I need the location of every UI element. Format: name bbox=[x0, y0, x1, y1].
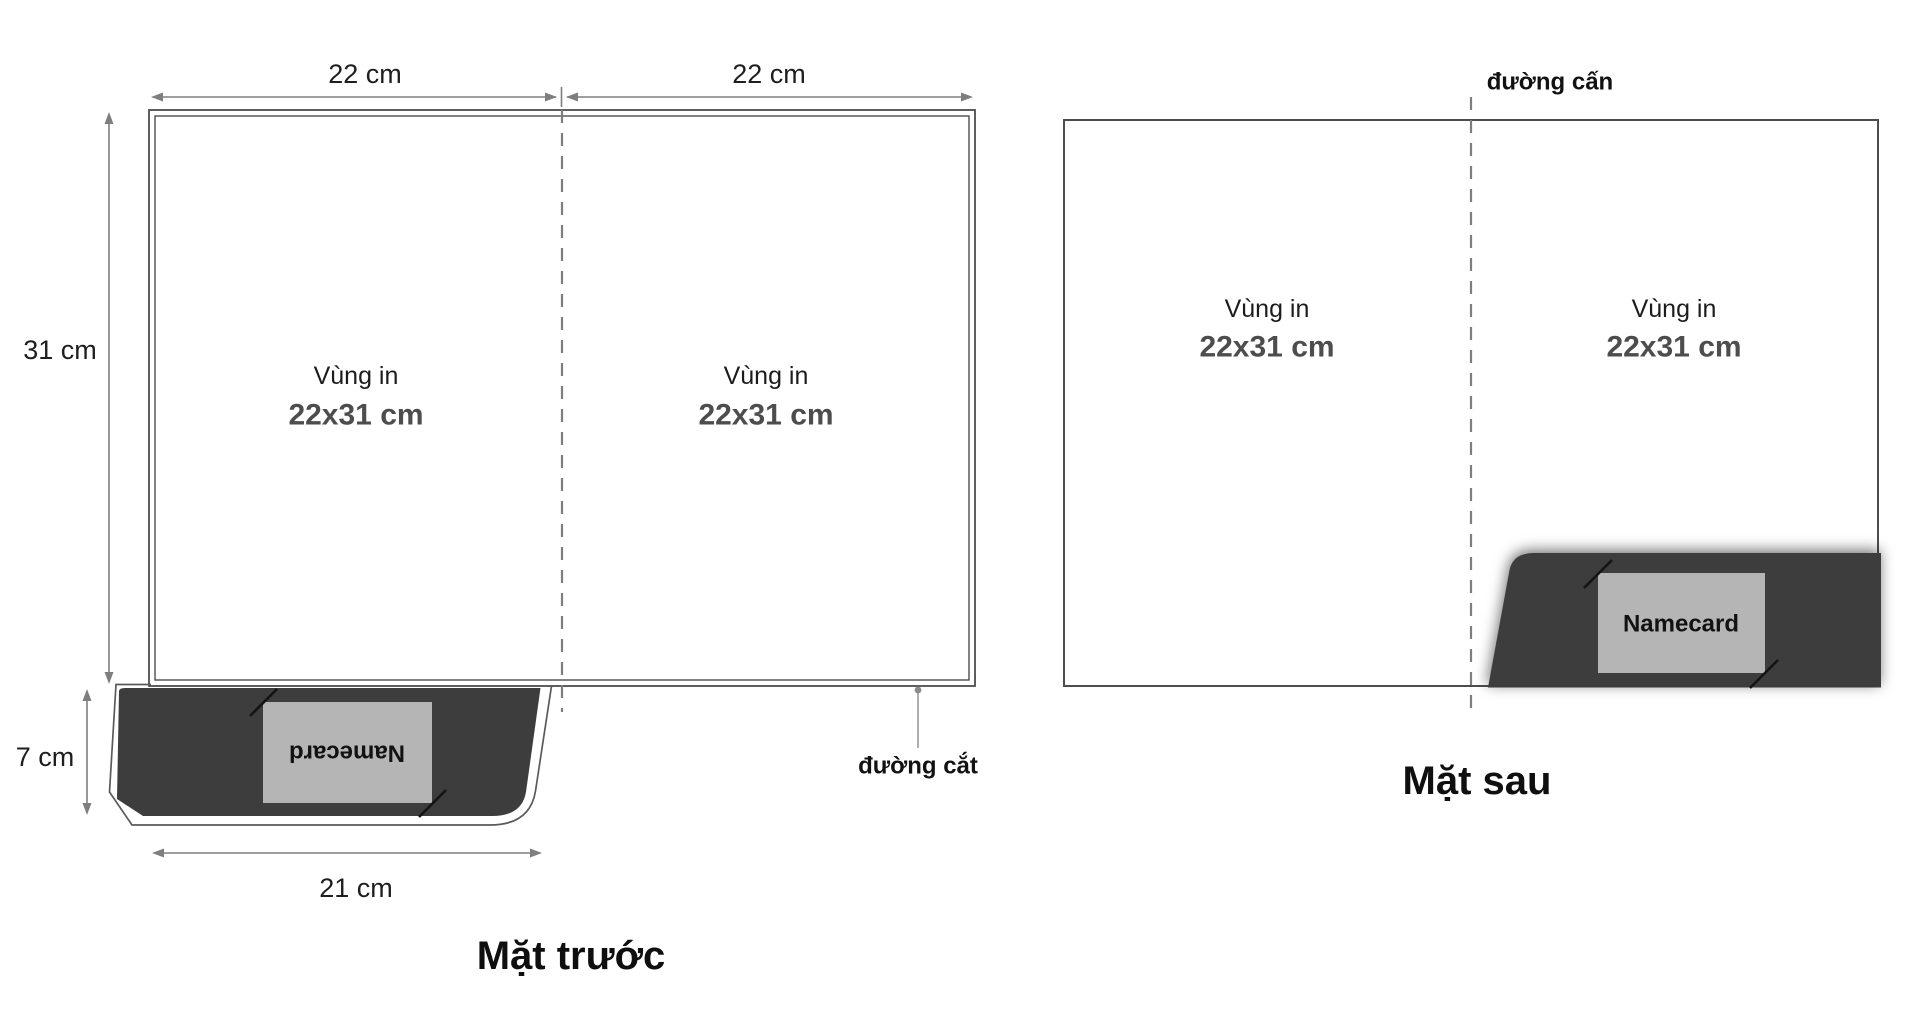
arrowhead-right-icon bbox=[530, 849, 542, 858]
arrowhead-left-icon bbox=[152, 849, 164, 858]
front-width-right-label: 22 cm bbox=[732, 59, 806, 89]
arrowhead-up-icon bbox=[105, 112, 114, 124]
back-panel-diagram: đường cấn Vùng in 22x31 cm Vùng in 22x31… bbox=[1064, 69, 1881, 804]
front-panel-diagram: 22 cm 22 cm 31 cm 7 cm Vùng in 22x31 cm … bbox=[16, 59, 978, 978]
back-namecard-slot: Namecard bbox=[1584, 560, 1778, 688]
back-namecard-label: Namecard bbox=[1623, 611, 1739, 638]
front-namecard-slot: Namecard bbox=[250, 689, 446, 817]
back-left-area-label: Vùng in bbox=[1225, 295, 1310, 323]
back-right-area-label: Vùng in bbox=[1632, 295, 1717, 323]
front-left-area-label: Vùng in bbox=[314, 362, 399, 390]
back-title: Mặt sau bbox=[1403, 759, 1552, 803]
front-width-dimension-left: 22 cm bbox=[151, 59, 557, 102]
front-height-label: 31 cm bbox=[23, 335, 97, 365]
front-pocket-height-dimension: 7 cm bbox=[16, 689, 92, 815]
front-width-left-label: 22 cm bbox=[328, 59, 402, 89]
arrowhead-left-icon bbox=[151, 93, 163, 102]
back-crease-label: đường cấn bbox=[1487, 69, 1613, 96]
front-title: Mặt trước bbox=[477, 934, 666, 978]
front-width-dimension-right: 22 cm bbox=[566, 59, 973, 102]
arrowhead-left-icon bbox=[566, 93, 578, 102]
arrowhead-down-icon bbox=[105, 672, 114, 684]
folder-dieline-diagram: 22 cm 22 cm 31 cm 7 cm Vùng in 22x31 cm … bbox=[0, 0, 1920, 1014]
front-pocket-height-label: 7 cm bbox=[16, 742, 75, 772]
front-right-area-size: 22x31 cm bbox=[698, 399, 833, 432]
front-cut-line-label: đường cắt bbox=[858, 752, 978, 780]
front-height-dimension: 31 cm bbox=[23, 112, 113, 684]
front-namecard-label: Namecard bbox=[289, 740, 405, 767]
front-cut-line-callout: đường cắt bbox=[858, 687, 978, 780]
dieline-canvas: 22 cm 22 cm 31 cm 7 cm Vùng in 22x31 cm … bbox=[0, 0, 1920, 1014]
front-pocket-width-dimension: 21 cm bbox=[152, 849, 542, 904]
back-right-area-size: 22x31 cm bbox=[1606, 331, 1741, 364]
arrowhead-right-icon bbox=[545, 93, 557, 102]
front-left-area-size: 22x31 cm bbox=[288, 399, 423, 432]
arrowhead-down-icon bbox=[83, 803, 92, 815]
back-left-area-size: 22x31 cm bbox=[1199, 331, 1334, 364]
front-right-area-label: Vùng in bbox=[724, 362, 809, 390]
front-pocket-width-label: 21 cm bbox=[319, 873, 393, 903]
arrowhead-up-icon bbox=[83, 689, 92, 701]
arrowhead-right-icon bbox=[961, 93, 973, 102]
